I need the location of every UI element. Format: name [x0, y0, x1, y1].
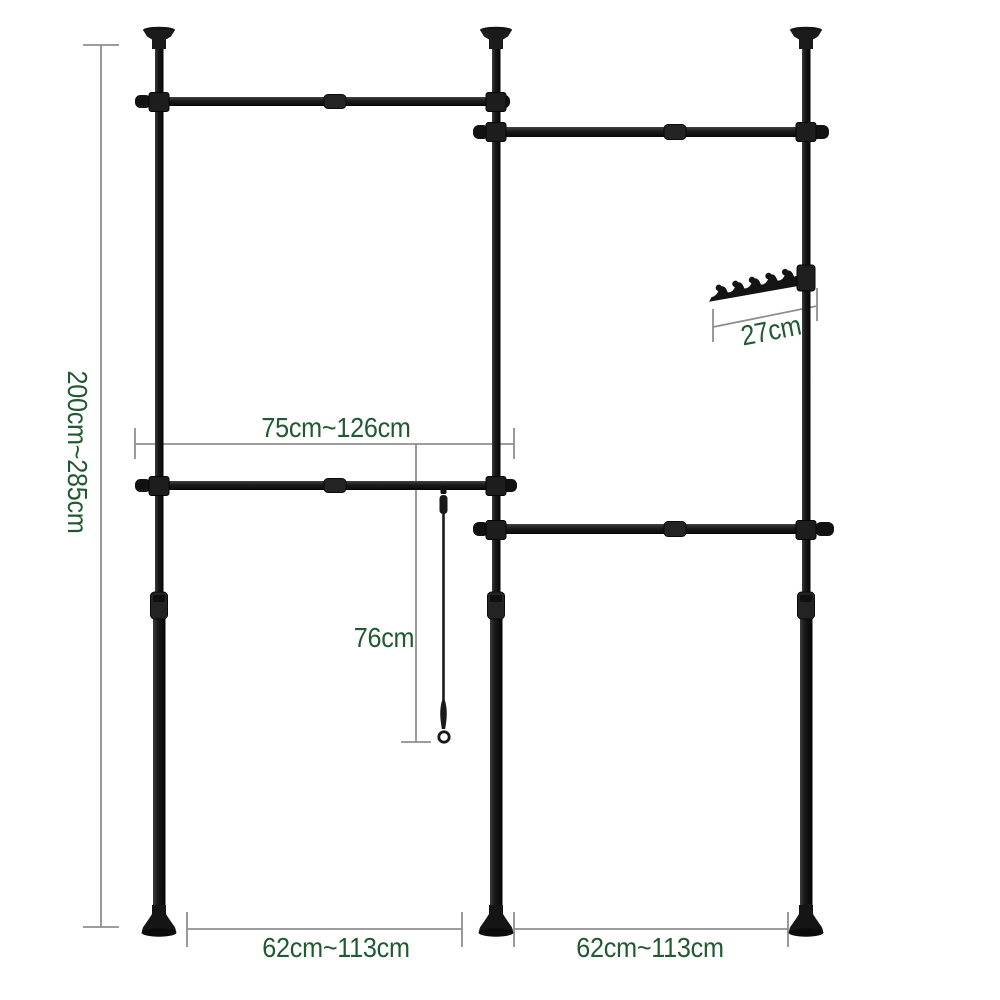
- ceiling-mount-cap: [480, 27, 512, 49]
- rail-clamps: [149, 93, 816, 540]
- rail-clamp: [486, 477, 506, 496]
- rail-clamp: [796, 521, 816, 540]
- rack-diagram-canvas: [0, 0, 1000, 1000]
- lower-rail-right-bay: [473, 522, 834, 537]
- top-rail-left-bay: [135, 95, 510, 109]
- rail-clamp: [149, 93, 169, 112]
- middle-rail-left-bay: [135, 479, 517, 493]
- floor-foot-base: [479, 905, 514, 937]
- rail-telescopic-adjuster: [324, 479, 346, 493]
- label-total-height: 200cm~285cm: [63, 370, 91, 533]
- rail-end-stub: [815, 522, 834, 536]
- label-left-bay-width: 62cm~113cm: [262, 934, 409, 962]
- ceiling-mount-cap: [143, 27, 175, 49]
- telescopic-pole-joint: [798, 592, 815, 619]
- floor-foot-base: [789, 905, 824, 937]
- rail-clamp: [486, 93, 506, 112]
- rail-telescopic-adjuster: [664, 522, 686, 537]
- rail-clamp: [486, 123, 506, 142]
- hanging-pull-strap: [439, 486, 449, 742]
- dimension-lines: [83, 45, 817, 947]
- rail-telescopic-adjuster: [324, 95, 346, 109]
- hanging-rails: [135, 95, 834, 537]
- rail-clamp: [486, 521, 506, 540]
- right-pole: [789, 27, 824, 937]
- rail-clamp: [149, 477, 169, 496]
- hook-bar-clamp: [797, 265, 815, 291]
- rail-clamp: [796, 123, 816, 142]
- rail-telescopic-adjuster: [664, 125, 686, 140]
- label-strap-length: 76cm: [354, 624, 415, 652]
- label-upper-rail-width: 75cm~126cm: [261, 414, 410, 442]
- ceiling-mount-cap: [790, 27, 822, 49]
- product-dimension-diagram: 200cm~285cm 75cm~126cm 76cm 27cm 62cm~11…: [0, 0, 1000, 1000]
- telescopic-pole-joint: [488, 592, 505, 619]
- top-rail-right-bay: [473, 125, 829, 140]
- floor-foot-base: [142, 905, 177, 937]
- strap-ring: [439, 732, 449, 742]
- label-right-bay-width: 62cm~113cm: [576, 934, 723, 962]
- telescopic-pole-joint: [151, 592, 168, 619]
- five-hook-hanger-bar: [706, 265, 815, 302]
